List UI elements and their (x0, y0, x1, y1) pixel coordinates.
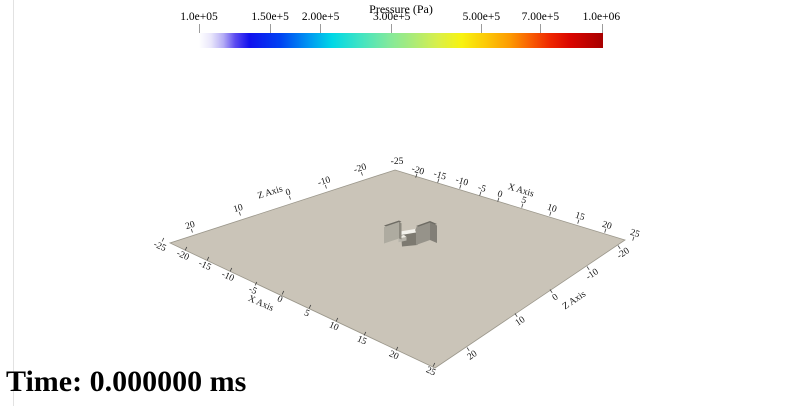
axis-corner-label: -25 (391, 157, 404, 167)
axis-tick-label: -5 (476, 183, 487, 195)
render-view: Pressure (Pa) 1.0e+05 1.50e+5 2.00e+5 3.… (0, 0, 800, 406)
time-display: Time: 0.000000 ms (6, 365, 246, 399)
axis-tick-label: 20 (466, 349, 480, 363)
axis-tick-label: 15 (574, 211, 586, 223)
axis-tick-label: 20 (601, 220, 613, 232)
axis-tick-label: 0 (496, 189, 504, 200)
axis-tick-label: -10 (454, 175, 469, 188)
axis-tick-label: 15 (355, 334, 368, 347)
axis-tick-label: -15 (432, 169, 447, 182)
axis-tick-label: 10 (232, 203, 244, 215)
axis-tick-label: 0 (551, 292, 561, 303)
x-axis-title-near: X Axis (246, 294, 275, 314)
x-axis-title-far: X Axis (506, 182, 535, 199)
z-axis-title-near: Z Axis (561, 289, 588, 312)
axis-tick-label: -20 (353, 162, 368, 175)
axis-tick-label: -25 (152, 240, 168, 254)
axis-tick-label: 0 (285, 187, 293, 198)
viewport-3d[interactable]: 20 10 Z Axis 0 -10 -20 -25 -20 -15 -10 -… (0, 0, 800, 406)
axis-tick-label: -10 (317, 175, 332, 188)
axis-tick-label: 25 (629, 228, 641, 240)
axis-tick-label: 20 (184, 220, 196, 232)
axis-tick-label: 0 (275, 294, 284, 305)
z-axis-title-far: Z Axis (257, 184, 285, 201)
axis-tick-label: -10 (585, 267, 601, 283)
axis-tick-label: 5 (520, 195, 528, 206)
obstacle-right-plate-edge (430, 223, 437, 244)
axis-tick-label: -20 (616, 246, 632, 262)
axis-tick-label: 5 (302, 308, 311, 319)
obstacle-left-plate-edge (399, 222, 402, 240)
axis-tick-label: 10 (546, 203, 558, 215)
axis-tick-label: 20 (387, 349, 400, 362)
axis-tick-label: 10 (514, 315, 528, 329)
ground-plane (170, 170, 625, 368)
